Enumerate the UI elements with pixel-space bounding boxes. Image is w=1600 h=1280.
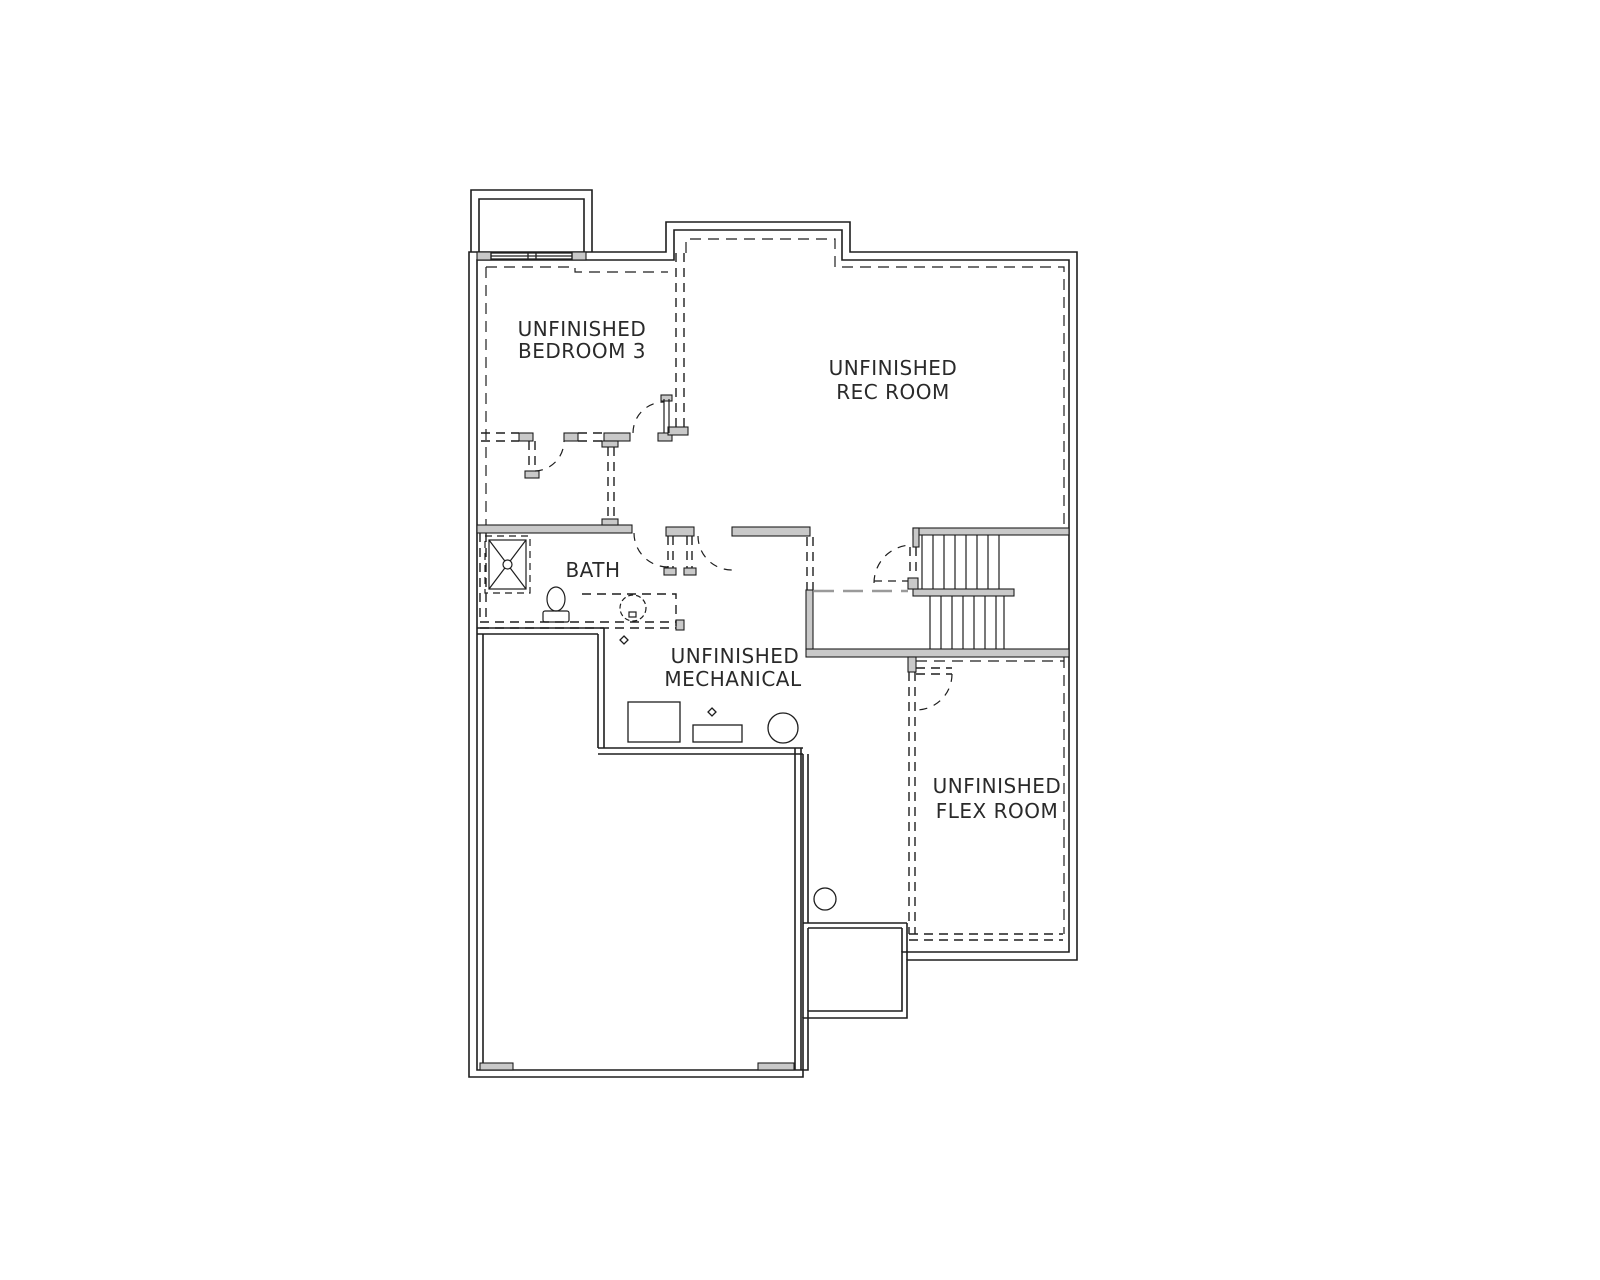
- stair-stringer: [913, 589, 1014, 596]
- closet-wall: [608, 447, 614, 519]
- bedroom-furring: [486, 267, 668, 272]
- stair-top-wall-cap: [913, 528, 919, 547]
- flex-west-wall: [909, 672, 915, 934]
- closet-door-arc: [535, 441, 564, 471]
- mech-hall-wall: [732, 527, 810, 536]
- stair-door-arc: [874, 545, 912, 583]
- sink-icon: [620, 595, 646, 621]
- window-icon: [491, 253, 572, 259]
- stair-bottom-wall: [806, 649, 1069, 657]
- closet-door-leaf: [529, 441, 535, 471]
- storage-room-walls: [477, 628, 803, 1070]
- landing-wall-upper: [807, 537, 813, 590]
- strip-west-wall: [803, 754, 808, 923]
- label-flex-room-line2: FLEX ROOM: [936, 799, 1058, 823]
- flex-door-post: [908, 657, 916, 672]
- bump-out-walls: [803, 923, 907, 1018]
- bath-door-arc: [634, 533, 668, 567]
- stair-door-post: [908, 578, 918, 589]
- window-well-inner: [479, 199, 584, 252]
- wall-cap: [564, 433, 578, 441]
- toilet-icon: [543, 587, 569, 622]
- window-post-left: [477, 252, 491, 260]
- floor-drain-icon: [708, 708, 716, 716]
- hall-stub-cap: [666, 527, 694, 536]
- water-heater-icon: [768, 713, 798, 743]
- wall-cap: [664, 568, 676, 575]
- hall-stub-wall: [668, 536, 692, 568]
- furnace-icon: [628, 702, 680, 742]
- label-bedroom3-line1: UNFINISHED: [518, 317, 647, 341]
- landing-west-wall: [806, 590, 813, 649]
- footing-tab: [480, 1063, 513, 1070]
- label-bath: BATH: [565, 558, 620, 582]
- bedroom-south-wall-a: [481, 433, 519, 441]
- bedroom-entry-door-arc: [633, 402, 664, 433]
- wall-cap: [676, 620, 684, 630]
- stair-doorway-frame: [910, 547, 916, 576]
- hvac-unit-icon: [693, 725, 742, 742]
- floor-plan-svg: UNFINISHED BEDROOM 3 UNFINISHED REC ROOM…: [0, 0, 1600, 1280]
- stair-top-wall: [913, 528, 1069, 535]
- label-mechanical-line1: UNFINISHED: [671, 644, 800, 668]
- stair-upper-treads: [922, 535, 999, 589]
- wall-cap: [519, 433, 533, 441]
- wall-cap: [602, 441, 618, 447]
- wall-cap: [684, 568, 696, 575]
- shower-icon: [485, 536, 530, 593]
- window-post-right: [572, 252, 586, 260]
- flex-door-arc: [916, 674, 952, 710]
- label-bedroom3-line2: BEDROOM 3: [518, 339, 646, 363]
- bath-north-wall: [477, 525, 632, 533]
- wall-cap: [661, 395, 672, 401]
- vanity-counter: [582, 594, 676, 626]
- floor-plan-page: UNFINISHED BEDROOM 3 UNFINISHED REC ROOM…: [0, 0, 1600, 1280]
- mech-door-arc: [698, 536, 732, 570]
- wall-cap: [525, 471, 539, 478]
- bath-south-wall: [480, 622, 676, 628]
- wall-cap: [602, 519, 618, 525]
- bedroom-south-wall-b: [578, 433, 604, 441]
- footing-tab: [758, 1063, 794, 1070]
- floor-drain-icon: [620, 636, 628, 644]
- label-flex-room-line1: UNFINISHED: [933, 774, 1062, 798]
- wall-cap: [668, 427, 688, 435]
- bedroom-east-wall: [676, 253, 684, 427]
- sump-pump-icon: [814, 888, 836, 910]
- room-labels: UNFINISHED BEDROOM 3 UNFINISHED REC ROOM…: [518, 317, 1062, 823]
- label-rec-room-line1: UNFINISHED: [829, 356, 958, 380]
- flex-south-wall: [909, 934, 1063, 940]
- flex-door-leaf: [916, 668, 952, 674]
- label-mechanical-line2: MECHANICAL: [664, 667, 802, 691]
- label-rec-room-line2: REC ROOM: [836, 380, 950, 404]
- stair-lower-treads: [930, 596, 1004, 649]
- wall-cap: [604, 433, 630, 441]
